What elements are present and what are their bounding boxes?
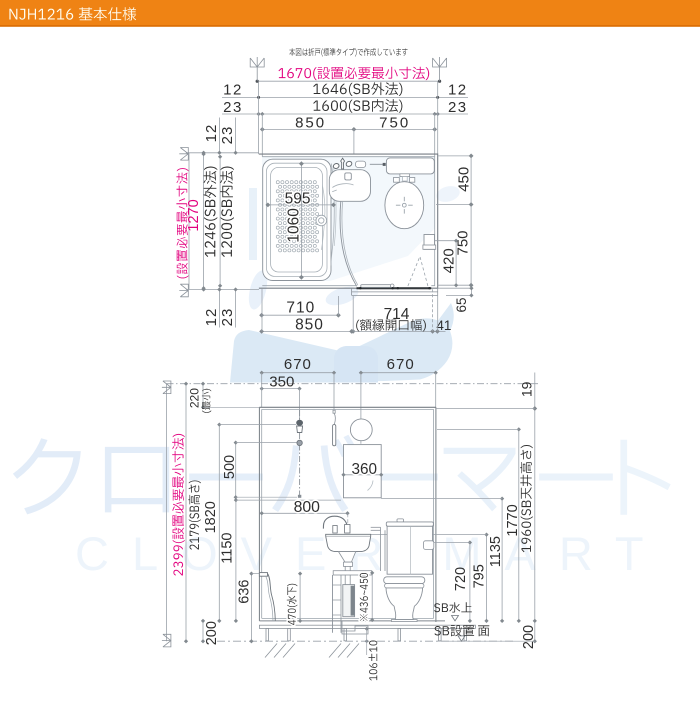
svg-text:1770: 1770 [505,504,521,536]
svg-text:12: 12 [448,81,468,98]
svg-text:12: 12 [203,124,220,143]
svg-text:420: 420 [441,248,458,273]
svg-text:1270: 1270 [186,199,202,231]
svg-text:1150: 1150 [220,533,236,564]
svg-text:670: 670 [284,356,312,373]
svg-text:350: 350 [269,373,294,390]
svg-text:720: 720 [453,567,469,591]
svg-text:360: 360 [352,461,378,478]
svg-text:1060: 1060 [286,208,303,243]
svg-text:19: 19 [518,381,534,397]
svg-text:200: 200 [521,625,537,649]
svg-text:795: 795 [472,564,488,588]
svg-text:23: 23 [219,308,236,327]
svg-text:670: 670 [387,356,415,373]
svg-text:41: 41 [436,318,451,333]
svg-text:850: 850 [295,316,324,333]
svg-text:1135: 1135 [488,536,504,567]
svg-text:200: 200 [204,621,220,645]
svg-text:23: 23 [219,126,236,145]
svg-text:750: 750 [379,114,410,131]
svg-text:220: 220 [188,388,202,408]
svg-text:714: 714 [384,306,410,323]
svg-text:12: 12 [203,308,220,327]
svg-text:800: 800 [294,499,321,516]
svg-text:850: 850 [295,114,326,131]
svg-text:710: 710 [286,300,315,317]
svg-text:500: 500 [222,455,238,479]
svg-text:595: 595 [285,191,311,208]
svg-text:636: 636 [236,579,252,603]
svg-text:12: 12 [223,81,243,98]
svg-text:65: 65 [454,297,469,312]
svg-text:1820: 1820 [203,501,219,533]
svg-text:23: 23 [448,99,468,116]
svg-text:23: 23 [223,99,243,116]
svg-text:450: 450 [456,167,473,192]
